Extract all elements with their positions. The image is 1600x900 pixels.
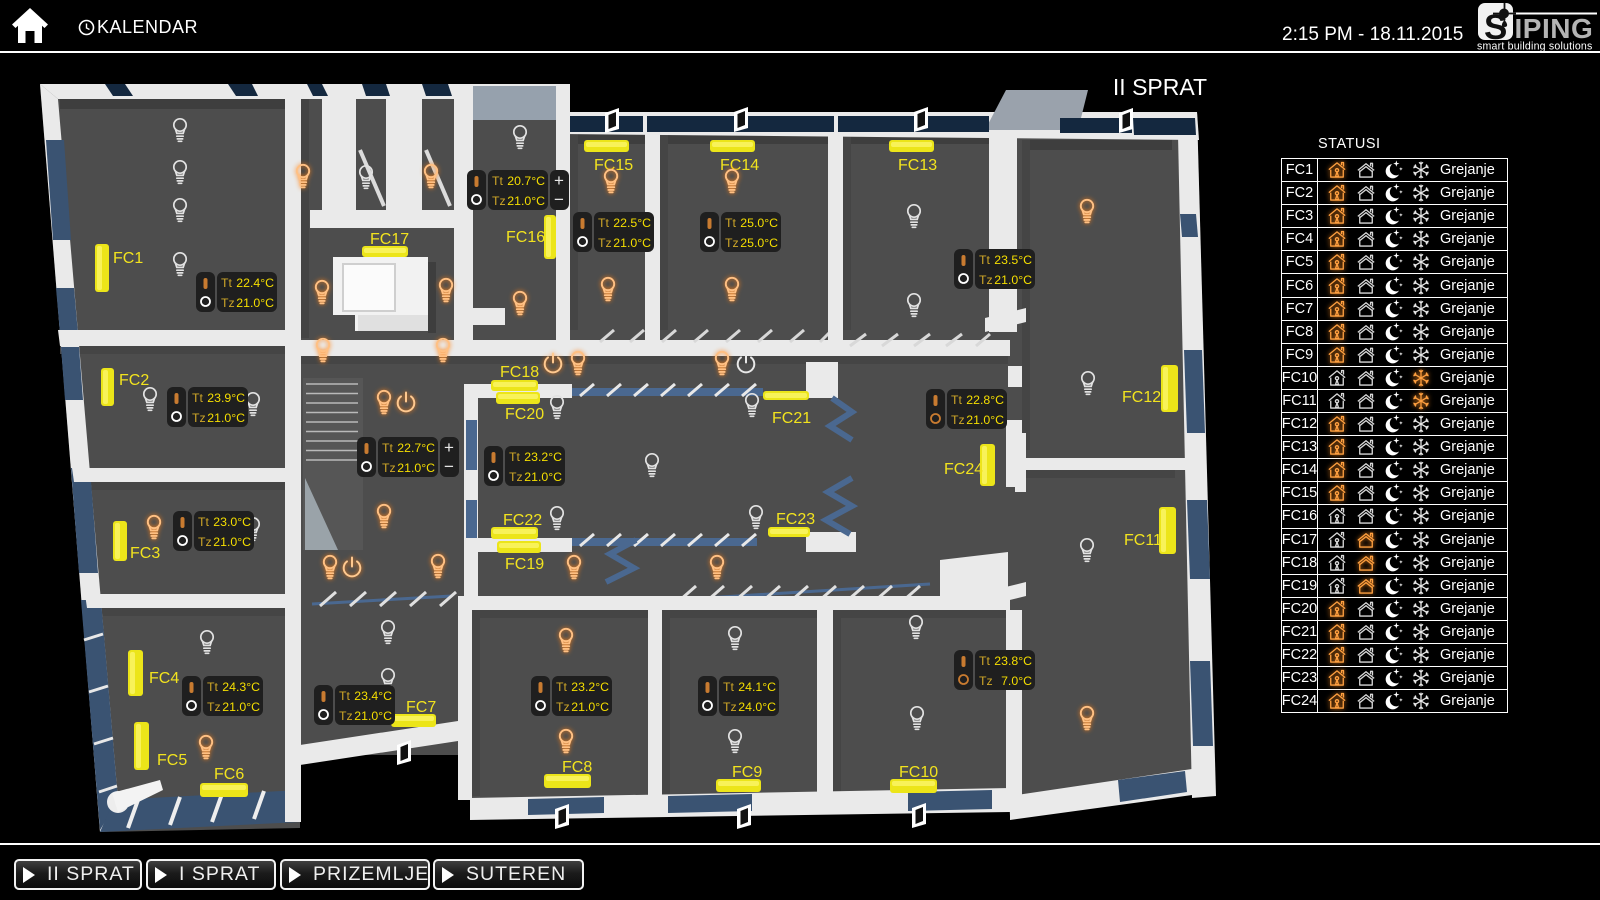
svg-text:FC19: FC19 bbox=[505, 556, 544, 573]
svg-text:22.7°C: 22.7°C bbox=[397, 441, 435, 455]
svg-text:20.7°C: 20.7°C bbox=[507, 174, 545, 188]
svg-text:Tt: Tt bbox=[192, 391, 204, 405]
svg-text:23.2°C: 23.2°C bbox=[524, 450, 562, 464]
svg-text:22.5°C: 22.5°C bbox=[613, 216, 651, 230]
svg-text:21.0°C: 21.0°C bbox=[397, 461, 435, 475]
svg-text:FC6: FC6 bbox=[214, 766, 244, 783]
svg-text:FC3: FC3 bbox=[130, 545, 160, 562]
svg-text:Tt: Tt bbox=[509, 450, 521, 464]
svg-text:Tz: Tz bbox=[492, 194, 506, 208]
svg-text:23.2°C: 23.2°C bbox=[571, 680, 609, 694]
svg-text:Tt: Tt bbox=[221, 276, 233, 290]
svg-text:FC20: FC20 bbox=[505, 406, 544, 423]
svg-text:21.0°C: 21.0°C bbox=[966, 413, 1004, 427]
svg-text:FC1: FC1 bbox=[113, 250, 143, 267]
svg-text:Tz: Tz bbox=[221, 296, 235, 310]
svg-text:Tt: Tt bbox=[198, 515, 210, 529]
svg-text:23.9°C: 23.9°C bbox=[207, 391, 245, 405]
svg-text:Tt: Tt bbox=[382, 441, 394, 455]
svg-text:21.0°C: 21.0°C bbox=[571, 700, 609, 714]
svg-text:FC13: FC13 bbox=[898, 157, 937, 174]
svg-text:smart building solutions: smart building solutions bbox=[1477, 41, 1593, 52]
svg-text:21.0°C: 21.0°C bbox=[994, 273, 1032, 287]
svg-text:Tz: Tz bbox=[207, 700, 221, 714]
svg-text:Tt: Tt bbox=[492, 174, 504, 188]
svg-text:24.0°C: 24.0°C bbox=[738, 700, 776, 714]
svg-text:22.8°C: 22.8°C bbox=[966, 393, 1004, 407]
svg-text:25.0°C: 25.0°C bbox=[740, 236, 778, 250]
svg-text:Tz: Tz bbox=[598, 236, 612, 250]
svg-text:Tt: Tt bbox=[339, 689, 351, 703]
svg-text:FC16: FC16 bbox=[506, 229, 545, 246]
svg-text:23.4°C: 23.4°C bbox=[354, 689, 392, 703]
svg-text:21.0°C: 21.0°C bbox=[613, 236, 651, 250]
svg-text:IPING: IPING bbox=[1515, 13, 1594, 44]
svg-text:FC5: FC5 bbox=[157, 752, 187, 769]
svg-text:21.0°C: 21.0°C bbox=[507, 194, 545, 208]
svg-text:Tt: Tt bbox=[979, 654, 991, 668]
svg-text:FC8: FC8 bbox=[562, 759, 592, 776]
svg-text:21.0°C: 21.0°C bbox=[207, 411, 245, 425]
svg-text:21.0°C: 21.0°C bbox=[354, 709, 392, 723]
svg-text:FC23: FC23 bbox=[776, 511, 815, 528]
svg-text:FC21: FC21 bbox=[772, 410, 811, 427]
svg-text:24.1°C: 24.1°C bbox=[738, 680, 776, 694]
svg-text:−: − bbox=[554, 190, 564, 209]
svg-text:21.0°C: 21.0°C bbox=[236, 296, 274, 310]
svg-text:23.0°C: 23.0°C bbox=[213, 515, 251, 529]
svg-text:FC14: FC14 bbox=[720, 157, 759, 174]
svg-text:Tz: Tz bbox=[339, 709, 353, 723]
svg-text:24.3°C: 24.3°C bbox=[222, 680, 260, 694]
svg-text:FC12: FC12 bbox=[1122, 389, 1161, 406]
svg-text:Tz: Tz bbox=[192, 411, 206, 425]
svg-text:FC18: FC18 bbox=[500, 364, 539, 381]
svg-text:FC2: FC2 bbox=[119, 372, 149, 389]
svg-text:FC10: FC10 bbox=[899, 764, 938, 781]
svg-text:22.4°C: 22.4°C bbox=[236, 276, 274, 290]
svg-text:FC17: FC17 bbox=[370, 231, 409, 248]
svg-text:Tz: Tz bbox=[951, 413, 965, 427]
svg-text:Tz: Tz bbox=[382, 461, 396, 475]
svg-text:21.0°C: 21.0°C bbox=[222, 700, 260, 714]
svg-text:Tt: Tt bbox=[951, 393, 963, 407]
svg-text:FC7: FC7 bbox=[406, 699, 436, 716]
svg-text:Tz: Tz bbox=[198, 535, 212, 549]
svg-text:Tz: Tz bbox=[556, 700, 570, 714]
svg-text:Tz: Tz bbox=[509, 470, 523, 484]
svg-text:7.0°C: 7.0°C bbox=[1001, 674, 1032, 688]
svg-text:Tz: Tz bbox=[725, 236, 739, 250]
svg-text:II SPRAT: II SPRAT bbox=[1113, 74, 1207, 100]
svg-text:Tz: Tz bbox=[979, 674, 993, 688]
svg-text:FC11: FC11 bbox=[1124, 532, 1162, 549]
svg-text:Tt: Tt bbox=[723, 680, 735, 694]
svg-text:−: − bbox=[444, 457, 454, 476]
svg-text:Tt: Tt bbox=[556, 680, 568, 694]
svg-text:23.5°C: 23.5°C bbox=[994, 253, 1032, 267]
svg-text:Tz: Tz bbox=[979, 273, 993, 287]
svg-text:Tt: Tt bbox=[725, 216, 737, 230]
svg-text:FC24: FC24 bbox=[944, 461, 983, 478]
svg-text:+: + bbox=[444, 438, 454, 457]
svg-text:21.0°C: 21.0°C bbox=[524, 470, 562, 484]
svg-text:25.0°C: 25.0°C bbox=[740, 216, 778, 230]
svg-text:Tt: Tt bbox=[598, 216, 610, 230]
svg-text:Tt: Tt bbox=[979, 253, 991, 267]
svg-text:FC15: FC15 bbox=[594, 157, 633, 174]
svg-text:FC9: FC9 bbox=[732, 764, 762, 781]
svg-text:+: + bbox=[554, 171, 564, 190]
svg-text:23.8°C: 23.8°C bbox=[994, 654, 1032, 668]
svg-text:Tt: Tt bbox=[207, 680, 219, 694]
svg-text:FC4: FC4 bbox=[149, 670, 179, 687]
svg-text:FC22: FC22 bbox=[503, 512, 542, 529]
svg-text:Tz: Tz bbox=[723, 700, 737, 714]
svg-text:21.0°C: 21.0°C bbox=[213, 535, 251, 549]
